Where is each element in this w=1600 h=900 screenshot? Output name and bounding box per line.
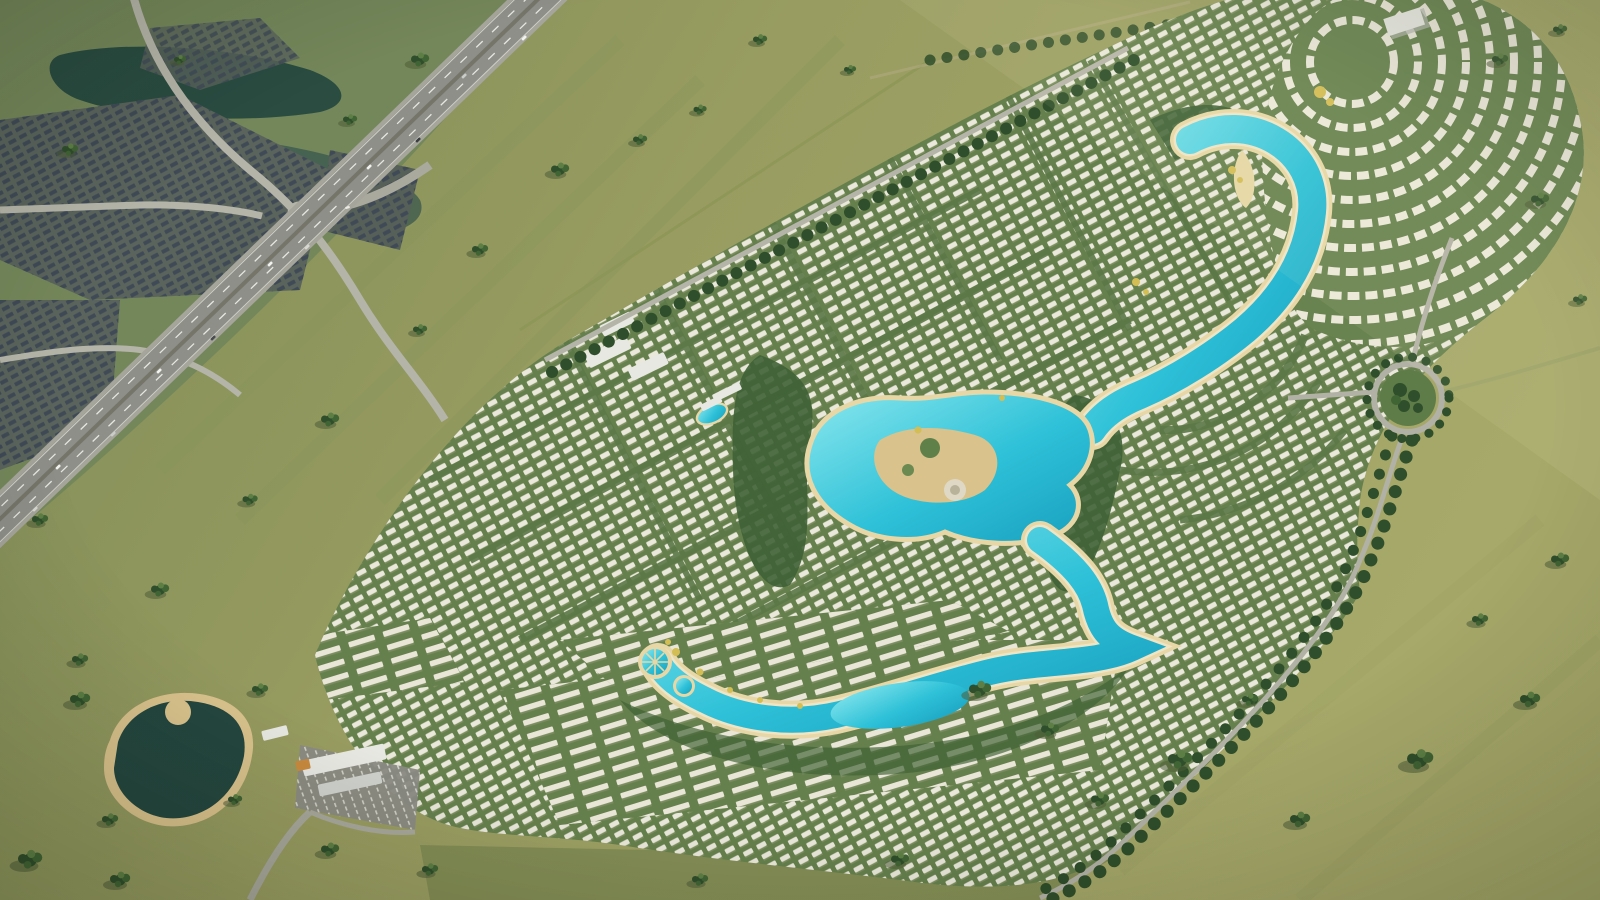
aerial-render-canvas	[0, 0, 1600, 900]
aerial-render-stage	[0, 0, 1600, 900]
